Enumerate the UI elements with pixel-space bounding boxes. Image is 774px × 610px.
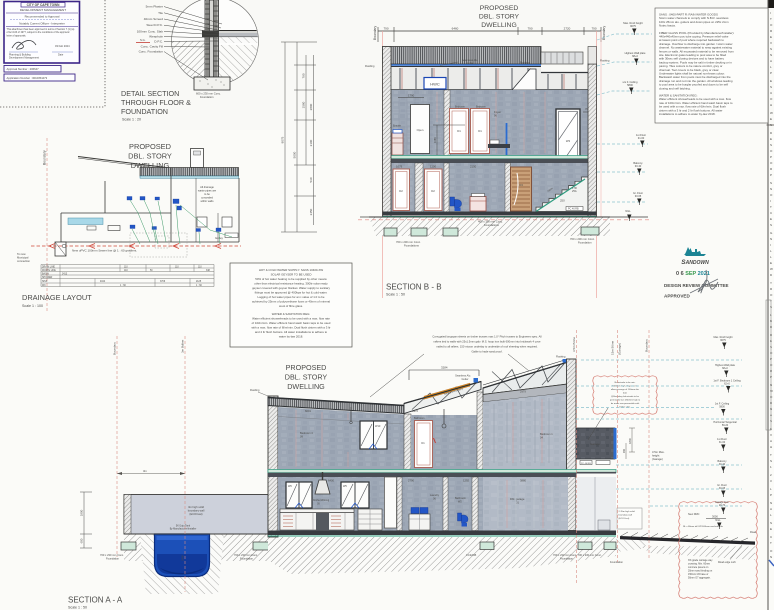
svg-text:2450: 2450	[309, 208, 313, 215]
svg-text:HWC: HWC	[430, 82, 440, 87]
svg-text:Foyer: Foyer	[494, 110, 501, 114]
svg-text:700 x 230 mm Conc.: 700 x 230 mm Conc.	[396, 240, 421, 244]
svg-text:T: T	[770, 17, 772, 21]
svg-text:permeable but ±800mm high to: permeable but ±800mm high to	[610, 399, 641, 402]
svg-text:62+0: 62+0	[724, 383, 730, 386]
svg-text:30.05: 30.05	[719, 487, 726, 490]
svg-text:A: A	[770, 439, 772, 443]
svg-text:3000: 3000	[712, 515, 718, 519]
svg-text:DBL. STORY: DBL. STORY	[128, 152, 172, 161]
svg-text:250: 250	[560, 199, 565, 203]
svg-text:Foundations: Foundations	[484, 223, 499, 227]
svg-text:(Garage): (Garage)	[652, 457, 663, 461]
svg-text:50mm G7 aggregate.: 50mm G7 aggregate.	[688, 577, 711, 580]
svg-text:W5: W5	[343, 485, 347, 488]
svg-text:Road edge curb: Road edge curb	[718, 561, 736, 564]
svg-text:9075: 9075	[630, 24, 636, 28]
svg-text:Water efficient showerheads to: Water efficient showerheads to be used w…	[252, 317, 330, 321]
svg-text:2-15m high solid: 2-15m high solid	[619, 511, 636, 513]
svg-text:NGL: NGL	[715, 519, 721, 522]
svg-text:closing and self latching.: closing and self latching.	[659, 86, 691, 90]
svg-text:Development Management: Development Management	[9, 57, 39, 60]
svg-text:SECTION B - B: SECTION B - B	[386, 283, 442, 292]
svg-text:2720: 2720	[564, 27, 571, 31]
svg-text:2150: 2150	[470, 165, 477, 169]
svg-text:Weephole: Weephole	[149, 35, 163, 39]
svg-text:Notably Current Officer - Inte: Notably Current Officer - Interpreter	[19, 22, 64, 26]
svg-text:15m B.line: 15m B.line	[611, 340, 615, 355]
svg-text:Corrugated longspan sheets on: Corrugated longspan sheets on timber tru…	[432, 335, 542, 339]
svg-text:New DMC: New DMC	[688, 513, 700, 516]
svg-text:Dbl. garage: Dbl. garage	[510, 497, 525, 501]
svg-text:100mm Conc. Slab: 100mm Conc. Slab	[137, 29, 164, 33]
svg-text:Flashing: Flashing	[556, 356, 566, 359]
svg-text:Boundary: Boundary	[373, 26, 377, 40]
svg-text:Foundation: Foundation	[240, 557, 254, 561]
svg-text:PC 40 RB: PC 40 RB	[568, 208, 579, 211]
svg-text:DRAIN LINE: DRAIN LINE	[42, 265, 55, 268]
svg-text:2100: 2100	[309, 139, 313, 146]
svg-text:E: E	[770, 117, 772, 121]
svg-text:Boundary: Boundary	[113, 342, 117, 355]
svg-text:Garage: Garage	[590, 442, 600, 446]
svg-text:S: S	[770, 181, 772, 185]
svg-text:400 x 300 mm Conc.: 400 x 300 mm Conc.	[478, 220, 503, 224]
svg-text:Gutter: Gutter	[466, 61, 473, 65]
svg-text:D.P.C.: D.P.C.	[154, 39, 163, 43]
svg-text:Gutter: Gutter	[462, 378, 469, 381]
svg-text:0 6 SEP 2021: 0 6 SEP 2021	[676, 271, 710, 277]
svg-text:790: 790	[383, 27, 388, 31]
svg-text:U: U	[770, 91, 772, 95]
svg-text:SECTION A - A: SECTION A - A	[68, 596, 123, 605]
svg-text:ball.: ball.	[623, 393, 627, 395]
svg-text:Open: Open	[417, 128, 424, 132]
svg-text:Municipal: Municipal	[17, 256, 29, 260]
svg-text:31.00: 31.00	[719, 441, 726, 444]
svg-text:WATER & SANITATION REG:: WATER & SANITATION REG:	[272, 312, 311, 316]
svg-text:All drainage: All drainage	[200, 185, 214, 189]
svg-text:Ensuite: Ensuite	[393, 125, 402, 128]
svg-text:Conc. Cavity Fill: Conc. Cavity Fill	[141, 44, 164, 48]
svg-text:6460: 6460	[452, 27, 459, 31]
svg-text:2400: 2400	[181, 555, 185, 561]
svg-text:Flashing: Flashing	[520, 62, 530, 65]
svg-text:3m Bdline: 3m Bdline	[181, 339, 185, 353]
svg-text:of 10l/m/min. Water efficient: of 10l/m/min. Water efficient hand wash …	[252, 321, 331, 325]
svg-text:N: N	[770, 555, 772, 559]
svg-text:New uPVC 100mm Sewer line @ 1: New uPVC 100mm Sewer line @ 1 : 60 gradi…	[72, 249, 137, 253]
svg-text:E: E	[770, 217, 772, 221]
svg-text:1079: 1079	[396, 165, 403, 169]
svg-text:6001: 6001	[305, 409, 311, 413]
svg-text:HOT & COLD WATER SUPPLY: SANS: HOT & COLD WATER SUPPLY: SANS 10400-XW	[259, 268, 324, 272]
svg-text:timber slats.: timber slats.	[619, 406, 631, 409]
svg-text:5mm Plaster: 5mm Plaster	[146, 5, 163, 9]
svg-text:N: N	[770, 187, 772, 191]
svg-text:1580: 1580	[302, 101, 306, 108]
svg-text:fittings must be approved @ 40: fittings must be approved @ 400kpa for h…	[255, 291, 328, 295]
svg-text:S: S	[770, 85, 772, 89]
svg-text:790: 790	[591, 27, 596, 31]
svg-text:installations to adhere to wat: installations to adhere to water by-law …	[659, 112, 716, 116]
svg-text:1 : 60: 1 : 60	[120, 285, 126, 287]
svg-text:790: 790	[527, 27, 532, 31]
svg-text:T: T	[770, 541, 772, 545]
svg-text:1 : 60: 1 : 60	[196, 285, 202, 287]
svg-text:5800: 5800	[627, 83, 633, 87]
svg-text:V: V	[770, 41, 772, 45]
svg-text:P: P	[770, 493, 772, 497]
svg-text:Boundary: Boundary	[43, 150, 47, 165]
svg-text:CITY OF CAPE TOWN: CITY OF CAPE TOWN	[27, 3, 61, 7]
svg-text:SANDOWN: SANDOWN	[681, 259, 709, 266]
svg-text:4044: 4044	[100, 281, 106, 283]
svg-text:2125: 2125	[196, 281, 202, 283]
svg-text:NGL: NGL	[625, 209, 631, 213]
svg-text:W: W	[770, 111, 773, 115]
svg-text:FOUNDATION: FOUNDATION	[121, 107, 168, 116]
svg-text:N: N	[770, 237, 772, 241]
svg-text:Tile: Tile	[158, 11, 163, 15]
svg-text:Foundation: Foundation	[106, 557, 120, 561]
svg-text:D1: D1	[457, 129, 461, 133]
svg-text:achieved by 25mm of polyuretha: achieved by 25mm of polyurethane foam or…	[252, 300, 330, 304]
svg-text:T: T	[770, 453, 772, 457]
svg-text:DWELLING: DWELLING	[481, 22, 517, 29]
svg-text:height: height	[652, 454, 660, 458]
svg-text:Steel D.P.C.: Steel D.P.C.	[146, 23, 163, 27]
svg-text:Bedroom: Bedroom	[455, 106, 465, 109]
svg-text:1292: 1292	[463, 479, 469, 483]
svg-text:Bedroom: Bedroom	[476, 106, 486, 109]
svg-text:(Garage): (Garage)	[618, 343, 622, 355]
svg-text:Balustrade to be min.: Balustrade to be min.	[615, 381, 636, 384]
svg-text:700 x 230 mm Conc.: 700 x 230 mm Conc.	[100, 553, 124, 557]
svg-text:P: P	[770, 155, 772, 159]
svg-text:Flashing: Flashing	[600, 60, 610, 63]
svg-text:with a max. flow rate of 6l/m/: with a max. flow rate of 6l/m/min. Dual …	[251, 326, 330, 330]
svg-text:WASTE LINE: WASTE LINE	[42, 269, 56, 272]
svg-text:T: T	[770, 205, 772, 209]
svg-text:30.40: 30.40	[635, 164, 642, 168]
svg-text:P: P	[770, 173, 772, 177]
svg-text:SOLAR GEYSER TO BE USED: SOLAR GEYSER TO BE USED	[271, 273, 312, 277]
svg-text:5000: 5000	[293, 151, 297, 158]
svg-text:68+0: 68+0	[722, 367, 728, 370]
svg-text:Gable to hade sand proof.: Gable to hade sand proof.	[471, 350, 502, 354]
svg-text:Scale 1 : 100: Scale 1 : 100	[22, 304, 43, 308]
svg-text:40mm Screed: 40mm Screed	[144, 17, 164, 21]
svg-text:DBL. STORY: DBL. STORY	[285, 373, 328, 382]
svg-text:D2: D2	[431, 189, 435, 193]
svg-text:(ECOCast): (ECOCast)	[619, 517, 630, 520]
svg-text:letter of approvals.: letter of approvals.	[7, 34, 27, 37]
svg-text:THROUGH FLOOR &: THROUGH FLOOR &	[121, 98, 191, 107]
svg-text:700 x 230 mm Conc.: 700 x 230 mm Conc.	[570, 237, 595, 241]
svg-text:nailed to all rafters. 150 mic: nailed to all rafters. 150 micron underl…	[436, 345, 537, 349]
svg-text:D1: D1	[478, 129, 482, 133]
svg-text:DEVELOPMENT MANAGEMENT: DEVELOPMENT MANAGEMENT	[20, 8, 66, 12]
svg-text:Scale 1 : 20: Scale 1 : 20	[122, 118, 141, 122]
svg-text:PROPOSED: PROPOSED	[480, 5, 519, 12]
svg-text:3m: 3m	[143, 469, 148, 473]
svg-text:Approval Number : 206647: Approval Number : 206647	[7, 67, 40, 71]
svg-text:1800: 1800	[80, 509, 84, 516]
svg-text:6400: 6400	[328, 479, 334, 483]
svg-text:3m high solid: 3m high solid	[188, 505, 204, 509]
svg-text:59.20: 59.20	[722, 424, 729, 427]
svg-text:W: W	[770, 389, 773, 393]
svg-text:Nutec fascia.: Nutec fascia.	[659, 24, 676, 28]
svg-text:Kitchen/Dining: Kitchen/Dining	[313, 499, 330, 502]
svg-text:W3: W3	[566, 139, 571, 143]
svg-text:BASIN: BASIN	[42, 272, 49, 275]
svg-text:E: E	[770, 261, 772, 265]
svg-text:Bedroom 1: Bedroom 1	[540, 432, 553, 436]
svg-text:3.5m B.line: 3.5m B.line	[572, 337, 576, 352]
svg-text:Foundations: Foundations	[404, 244, 419, 248]
svg-text:700 x 230 mm Conc. 700 x 230: 700 x 230 mm Conc. 700 x 230 mm Conc.	[553, 553, 602, 557]
svg-text:S: S	[770, 47, 772, 51]
svg-text:H: H	[770, 445, 772, 449]
svg-text:530: 530	[309, 177, 313, 182]
svg-text:50% of hot water heating to be: 50% of hot water heating to be supplied …	[255, 277, 327, 281]
svg-text:31.00: 31.00	[638, 136, 645, 140]
svg-text:30.05: 30.05	[635, 194, 642, 198]
svg-text:SINK: SINK	[42, 281, 48, 283]
svg-text:2790: 2790	[408, 479, 414, 483]
svg-text:PROPOSED: PROPOSED	[129, 142, 171, 151]
svg-text:3.5m Max.: 3.5m Max.	[652, 450, 665, 454]
svg-text:W: W	[770, 267, 773, 271]
svg-text:3413: 3413	[62, 273, 68, 275]
svg-text:V: V	[770, 433, 772, 437]
svg-text:1085: 1085	[433, 137, 437, 143]
svg-text:H: H	[770, 103, 772, 107]
svg-text:DESIGN REVIEW COMMITTEE: DESIGN REVIEW COMMITTEE	[664, 283, 729, 288]
svg-text:Bedroom 4: Bedroom 4	[300, 431, 313, 435]
svg-text:WC: WC	[42, 285, 46, 287]
svg-text:E: E	[770, 137, 772, 141]
svg-text:790: 790	[302, 73, 306, 78]
svg-text:N: N	[770, 53, 772, 57]
svg-text:1100: 1100	[430, 165, 436, 169]
svg-text:DETAIL SECTION: DETAIL SECTION	[121, 89, 179, 98]
svg-text:9075: 9075	[720, 339, 726, 342]
svg-text:(ECOCast): (ECOCast)	[189, 512, 202, 516]
svg-text:Date: Date	[58, 54, 64, 57]
svg-text:Conc. Foundation: Conc. Foundation	[139, 50, 164, 54]
svg-text:700 x 230 mm Conc.: 700 x 230 mm Conc.	[234, 553, 258, 557]
svg-text:68+0: 68+0	[632, 54, 638, 58]
svg-text:5800: 5800	[719, 406, 725, 409]
svg-text:8075: 8075	[281, 136, 285, 143]
svg-text:and 2 ltr flush buttons. All w: and 2 ltr flush buttons. All water insta…	[255, 330, 328, 334]
svg-text:Foundation: Foundation	[578, 241, 592, 245]
svg-text:3284: 3284	[441, 366, 448, 370]
svg-text:within walls: within walls	[200, 199, 214, 203]
svg-text:D3: D3	[519, 183, 523, 187]
svg-text:W2: W2	[458, 501, 462, 504]
svg-text:Y: Y	[770, 281, 772, 285]
svg-text:DBL. STORY: DBL. STORY	[479, 14, 520, 21]
svg-text:CC22CB: CC22CB	[466, 553, 477, 557]
svg-text:D2: D2	[399, 189, 403, 193]
svg-text:other than electrical resistan: other than electrical resistance heating…	[254, 282, 328, 286]
svg-text:3880: 3880	[520, 479, 526, 483]
svg-text:@Boundary balustrade to be: @Boundary balustrade to be	[611, 395, 640, 398]
svg-text:A: A	[770, 59, 772, 63]
svg-text:boundary wall: boundary wall	[619, 514, 633, 517]
svg-text:be made non-permeable with: be made non-permeable with	[611, 402, 640, 405]
svg-text:S: S	[770, 223, 772, 227]
svg-text:30.40: 30.40	[719, 463, 726, 466]
svg-text:waste pipes are: waste pipes are	[198, 189, 217, 193]
svg-text:Bathroom: Bathroom	[414, 417, 424, 420]
svg-text:APPROVED: APPROVED	[664, 294, 690, 299]
svg-text:rafters tied to walls with 25x: rafters tied to walls with 25x1.5mm galv…	[434, 340, 541, 344]
svg-text:A: A	[770, 507, 772, 511]
svg-text:connection: connection	[17, 259, 31, 263]
svg-text:Lagging of hot water pipes for: Lagging of hot water pipes for an r-valu…	[257, 295, 324, 299]
svg-text:Foundation: Foundation	[200, 95, 214, 99]
svg-text:900: 900	[623, 448, 626, 453]
svg-text:SHOWER: SHOWER	[42, 277, 53, 279]
svg-text:P: P	[770, 71, 772, 75]
svg-text:water by-law 2018.: water by-law 2018.	[279, 335, 303, 339]
svg-text:S: S	[770, 459, 772, 463]
svg-text:3706: 3706	[160, 281, 166, 283]
svg-text:S.G.: S.G.	[140, 38, 146, 42]
svg-text:boundary wall: boundary wall	[188, 509, 205, 513]
svg-text:03 Feb 2024: 03 Feb 2024	[55, 44, 70, 48]
svg-text:Recommended to Approval: Recommended to Approval	[25, 15, 60, 19]
svg-text:wool of fibre glass.: wool of fibre glass.	[279, 304, 303, 308]
svg-text:E: E	[770, 527, 772, 531]
svg-text:DWELLING: DWELLING	[287, 382, 325, 391]
svg-text:S: S	[770, 143, 772, 147]
svg-text:PROPOSED: PROPOSED	[286, 363, 327, 372]
svg-text:W6: W6	[288, 485, 292, 488]
svg-text:Foundation: Foundation	[560, 557, 574, 561]
svg-text:N: N	[770, 501, 772, 505]
svg-text:2979: 2979	[520, 390, 526, 394]
svg-text:Scale 1 : 50: Scale 1 : 50	[68, 606, 87, 610]
svg-text:allow passage of 100mm dia.: allow passage of 100mm dia.	[611, 389, 640, 391]
svg-text:DRAINAGE LAYOUT: DRAINAGE LAYOUT	[22, 293, 92, 302]
svg-text:To new: To new	[17, 252, 26, 256]
svg-text:geyser covered with geyser bla: geyser covered with geyser blanket. Wate…	[252, 286, 330, 290]
svg-text:2800: 2800	[309, 103, 313, 110]
svg-text:S: S	[770, 521, 772, 525]
svg-text:PC 40 RB: PC 40 RB	[581, 463, 591, 465]
svg-text:25A: 25A	[572, 189, 577, 193]
svg-text:29.70: 29.70	[719, 504, 726, 507]
svg-text:concealed: concealed	[201, 196, 213, 200]
svg-text:NL ± 80mm tall UP2000mm washed: NL ± 80mm tall UP2000mm washed curb	[683, 525, 724, 528]
svg-text:D1: D1	[421, 441, 425, 445]
svg-text:E: E	[770, 35, 772, 39]
svg-text:W10: W10	[375, 424, 381, 428]
svg-text:600: 600	[80, 538, 84, 543]
svg-text:Flashing: Flashing	[365, 65, 375, 68]
svg-text:Foundation: Foundation	[610, 560, 624, 564]
svg-text:Flashing: Flashing	[250, 389, 260, 392]
svg-text:Boundary: Boundary	[645, 339, 649, 352]
svg-text:Application Number : 00100544: Application Number : 0010054473	[7, 76, 48, 80]
svg-text:1800: 1800	[628, 438, 632, 444]
svg-text:By Manufacturer/Installer: By Manufacturer/Installer	[170, 528, 197, 531]
svg-text:to be: to be	[204, 192, 210, 196]
svg-text:1790: 1790	[408, 94, 415, 98]
svg-text:Scale 1 : 50: Scale 1 : 50	[386, 293, 405, 297]
svg-text:E: E	[770, 79, 772, 83]
